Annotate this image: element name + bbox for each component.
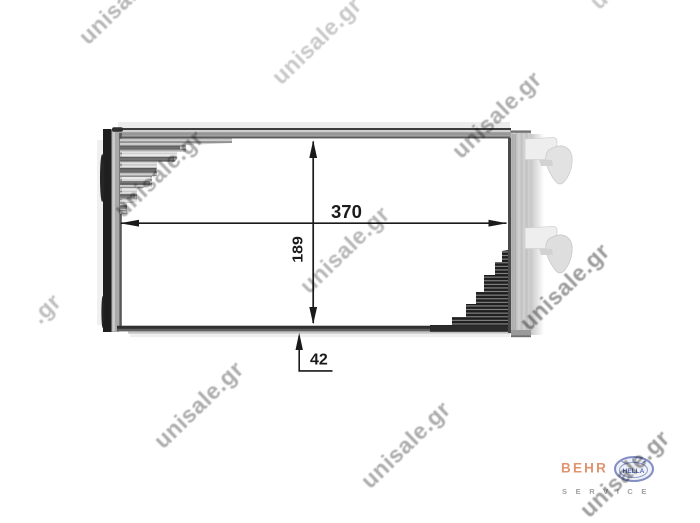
svg-text:189: 189 <box>290 236 306 263</box>
svg-text:BEHR: BEHR <box>561 461 608 476</box>
svg-text:42: 42 <box>310 351 328 368</box>
